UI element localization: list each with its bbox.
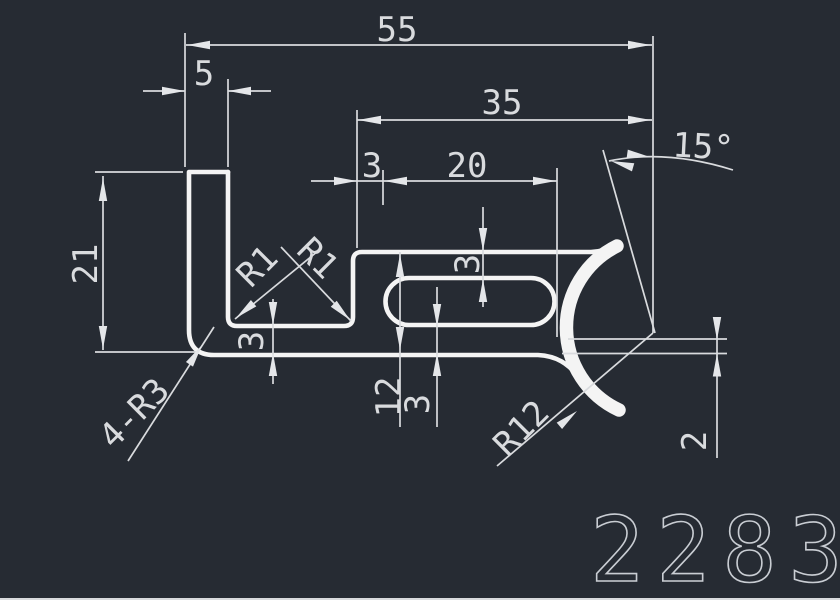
dim-leg-height: 21: [66, 244, 106, 285]
dim-hook-radius: R12: [486, 393, 558, 465]
dim-slot-bottom-wall: 3: [398, 394, 438, 414]
dim-slot-offset: 3: [362, 146, 382, 186]
slot-cutout: [386, 278, 555, 325]
dim-hook-thickness: 2: [675, 431, 715, 451]
part-number: 2283: [590, 498, 840, 600]
dim-arm-width: 35: [482, 83, 523, 123]
dim-inner-fillet-right: R1: [289, 230, 346, 287]
dim-total-width: 55: [377, 10, 418, 50]
dim-slot-length: 20: [447, 146, 488, 186]
dim-angle: 15°: [671, 125, 734, 168]
angle-slant-line: [603, 150, 655, 333]
dim-corner-fillets: 4-R3: [91, 370, 177, 456]
dim-inner-fillet-left: R1: [229, 238, 286, 295]
dim-leg-width: 5: [194, 54, 214, 94]
dim-base-thickness: 3: [232, 331, 272, 351]
cad-drawing-canvas: 55 5 35 3 20 15° 21 R1 R1 3 3 12 3 4-R3: [0, 0, 840, 600]
dim-slot-top-wall: 3: [448, 254, 488, 274]
dimension-labels: 55 5 35 3 20 15° 21 R1 R1 3 3 12 3 4-R3: [66, 10, 735, 464]
